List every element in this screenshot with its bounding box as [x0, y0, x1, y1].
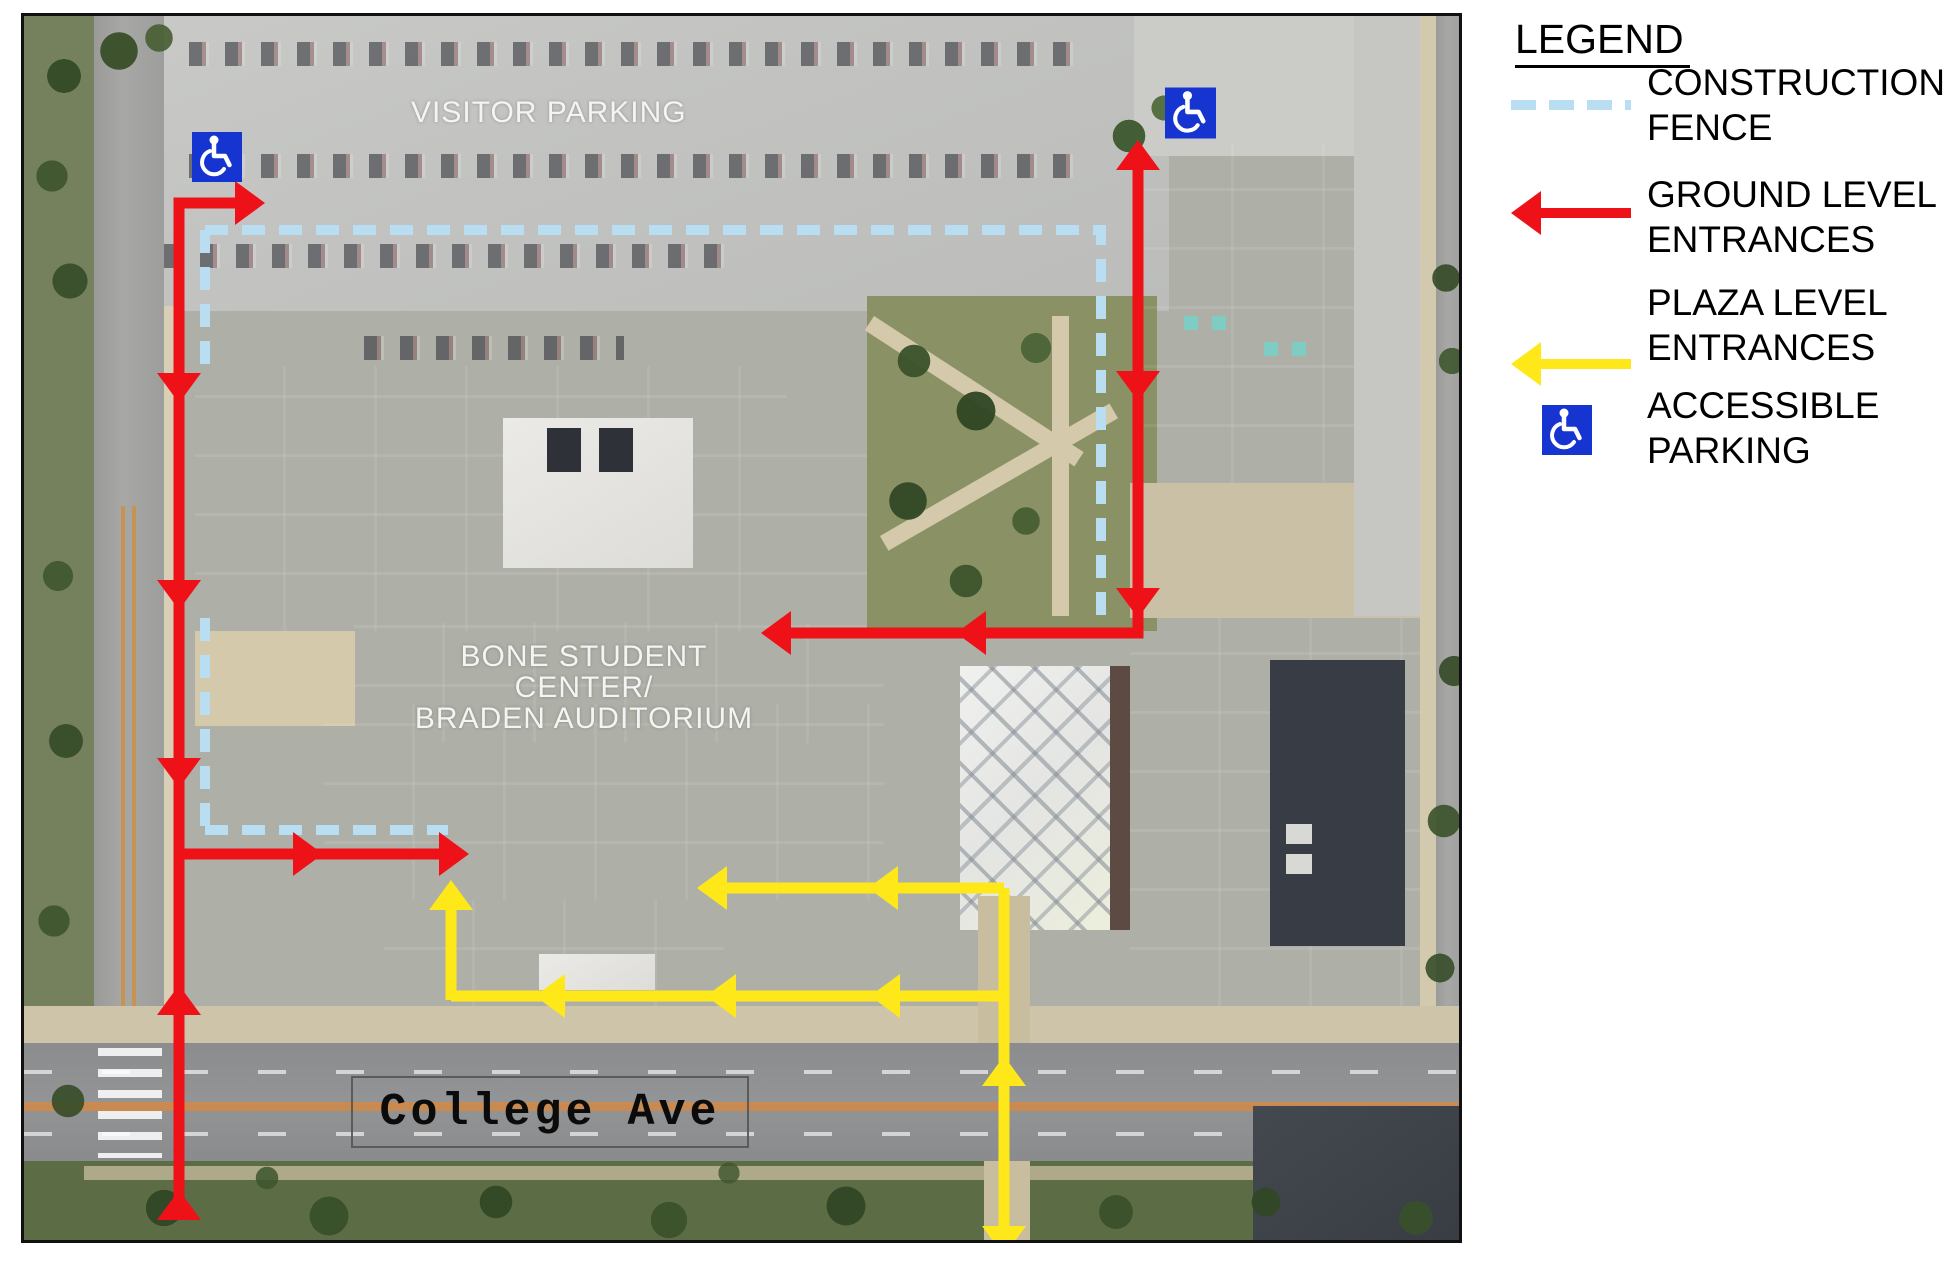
skylight — [1184, 316, 1198, 330]
parked-car-row — [164, 244, 724, 268]
north-sidewalk-college-ave — [24, 1006, 1462, 1043]
tent-east-edge — [1110, 666, 1130, 930]
parked-car-row — [189, 154, 1089, 178]
white-rooftop-strip — [539, 954, 655, 990]
rooftop-vent — [599, 428, 633, 472]
legend-item-label: ACCESSIBLE — [1647, 383, 1879, 428]
crosswalk — [98, 1048, 162, 1158]
white-rooftop-section — [503, 418, 693, 568]
skylight — [1212, 316, 1226, 330]
legend-item-label: PLAZA LEVEL — [1647, 280, 1888, 325]
rooftop-vent — [1286, 854, 1312, 874]
red-arrowhead-right — [293, 832, 323, 876]
building-roof-north-east — [787, 398, 867, 631]
tent-truss-frame — [960, 666, 1110, 930]
street-label-box: College Ave — [351, 1076, 749, 1148]
building-label-line1: BONE STUDENT CENTER/ — [394, 641, 774, 703]
east-street — [1436, 16, 1462, 1026]
plaza-bridge-walk — [978, 896, 1030, 1046]
east-sidewalk — [1420, 16, 1436, 1026]
building-roof-north-wing — [195, 366, 787, 631]
rooftop-vent — [547, 428, 581, 472]
aerial-map: VISITOR PARKING BONE STUDENT CENTER/ BRA… — [21, 13, 1462, 1243]
building-label-line2: BRADEN AUDITORIUM — [394, 703, 774, 734]
legend: LEGEND CONSTRUCTION FENCE GROUND LEVEL E… — [1495, 0, 1955, 520]
legend-item-label: FENCE — [1647, 105, 1945, 150]
parked-car-row — [364, 336, 624, 360]
skylight — [1264, 342, 1278, 356]
legend-wheelchair-icon — [1542, 403, 1592, 457]
lane-line — [24, 1070, 1462, 1074]
plaza-path — [1052, 316, 1069, 616]
legend-item-label: GROUND LEVEL — [1647, 172, 1937, 217]
auditorium-roof-lower — [384, 900, 724, 1006]
legend-ground-level-arrow — [1511, 191, 1631, 235]
skylight — [1292, 342, 1306, 356]
building-roof-northeast — [1143, 143, 1354, 483]
building-roof-far-southeast — [1253, 1106, 1462, 1243]
legend-item-label: CONSTRUCTION — [1647, 60, 1945, 105]
legend-item-label: ENTRANCES — [1647, 217, 1937, 262]
campus-wayfinding-map-page: VISITOR PARKING BONE STUDENT CENTER/ BRA… — [0, 0, 1958, 1268]
rooftop-vent — [1286, 824, 1312, 844]
college-ave-label: College Ave — [379, 1087, 720, 1138]
legend-plaza-level-arrow — [1511, 342, 1631, 386]
legend-construction-fence-sample — [1511, 100, 1631, 110]
west-sidewalk — [164, 306, 184, 1046]
visitor-parking-label: VISITOR PARKING — [411, 96, 687, 130]
parked-car-row — [189, 42, 1089, 66]
rooftop-penthouse — [1270, 660, 1405, 946]
south-path — [984, 1161, 1030, 1243]
legend-item-label: PARKING — [1647, 428, 1879, 473]
legend-item-label: ENTRANCES — [1647, 325, 1888, 370]
